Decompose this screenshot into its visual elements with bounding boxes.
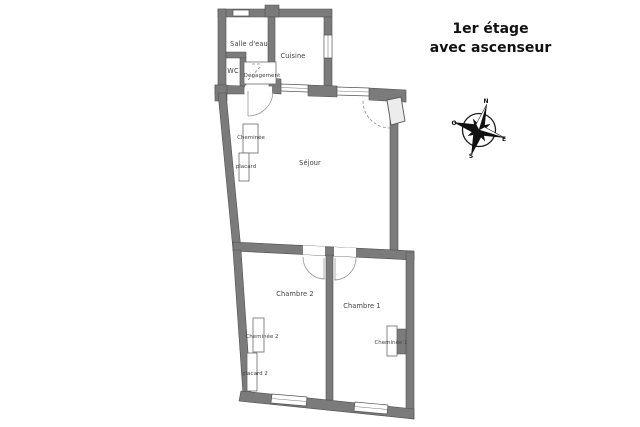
compass-south-label: S xyxy=(469,153,473,160)
feature-label-placard2: placard 2 xyxy=(242,370,268,377)
wall-cuisine-right-a xyxy=(324,17,332,35)
compass-north-label: N xyxy=(483,98,488,105)
doorway-degagement-sejour xyxy=(245,86,272,94)
wall-right-chambres xyxy=(406,252,414,419)
window-sejour-top xyxy=(337,87,369,96)
entry-door-arc xyxy=(363,101,390,128)
doorway-chambre1 xyxy=(334,247,356,257)
compass-east-label: E xyxy=(502,136,506,143)
compass-rose-icon: N E S O xyxy=(445,96,512,163)
window-cuisine-right xyxy=(324,35,332,58)
feature-label-cheminee1: Cheminée 1 xyxy=(374,339,407,346)
window-cuisine-sejour xyxy=(281,84,308,92)
compass-west-label: O xyxy=(451,120,456,127)
wall-left-sejour xyxy=(218,93,241,250)
door-arc-degagement xyxy=(248,91,273,116)
room-label-chambre2: Chambre 2 xyxy=(276,290,313,298)
wall-salledeau-cuisine xyxy=(268,17,275,63)
doorway-chambre2 xyxy=(303,246,325,256)
feature-label-cheminee: Cheminée xyxy=(237,134,265,141)
room-label-wc: WC xyxy=(227,67,238,75)
entry-door xyxy=(363,97,405,128)
room-label-sejour: Séjour xyxy=(299,159,321,167)
floorplan-page: N E S O 1er étage avec ascenseur Salle d… xyxy=(0,0,640,427)
wall-sejour-top-mid xyxy=(308,85,337,97)
title-line1: 1er étage xyxy=(408,20,573,39)
feature-label-cheminee2: Cheminée 2 xyxy=(245,333,278,340)
wall-cuisine-right-b xyxy=(324,58,332,90)
wall-wc-top xyxy=(226,52,246,58)
door-arc-chambre1 xyxy=(334,258,356,280)
floorplan-canvas: N E S O xyxy=(0,0,640,427)
feature-label-placard: placard xyxy=(236,163,256,170)
room-label-cuisine: Cuisine xyxy=(281,52,306,60)
wall-divider-chambres xyxy=(326,255,333,400)
wall-left-upper xyxy=(218,9,226,93)
room-label-degagement: Dégagement xyxy=(244,72,281,79)
room-label-chambre1: Chambre 1 xyxy=(343,302,380,310)
wall-top-tab xyxy=(265,5,279,17)
page-title: 1er étage avec ascenseur xyxy=(408,20,573,58)
window-top-left xyxy=(233,10,249,16)
door-arc-chambre2 xyxy=(303,257,325,279)
room-label-salle-deau: Salle d'eau xyxy=(230,40,268,48)
title-line2: avec ascenseur xyxy=(408,39,573,58)
